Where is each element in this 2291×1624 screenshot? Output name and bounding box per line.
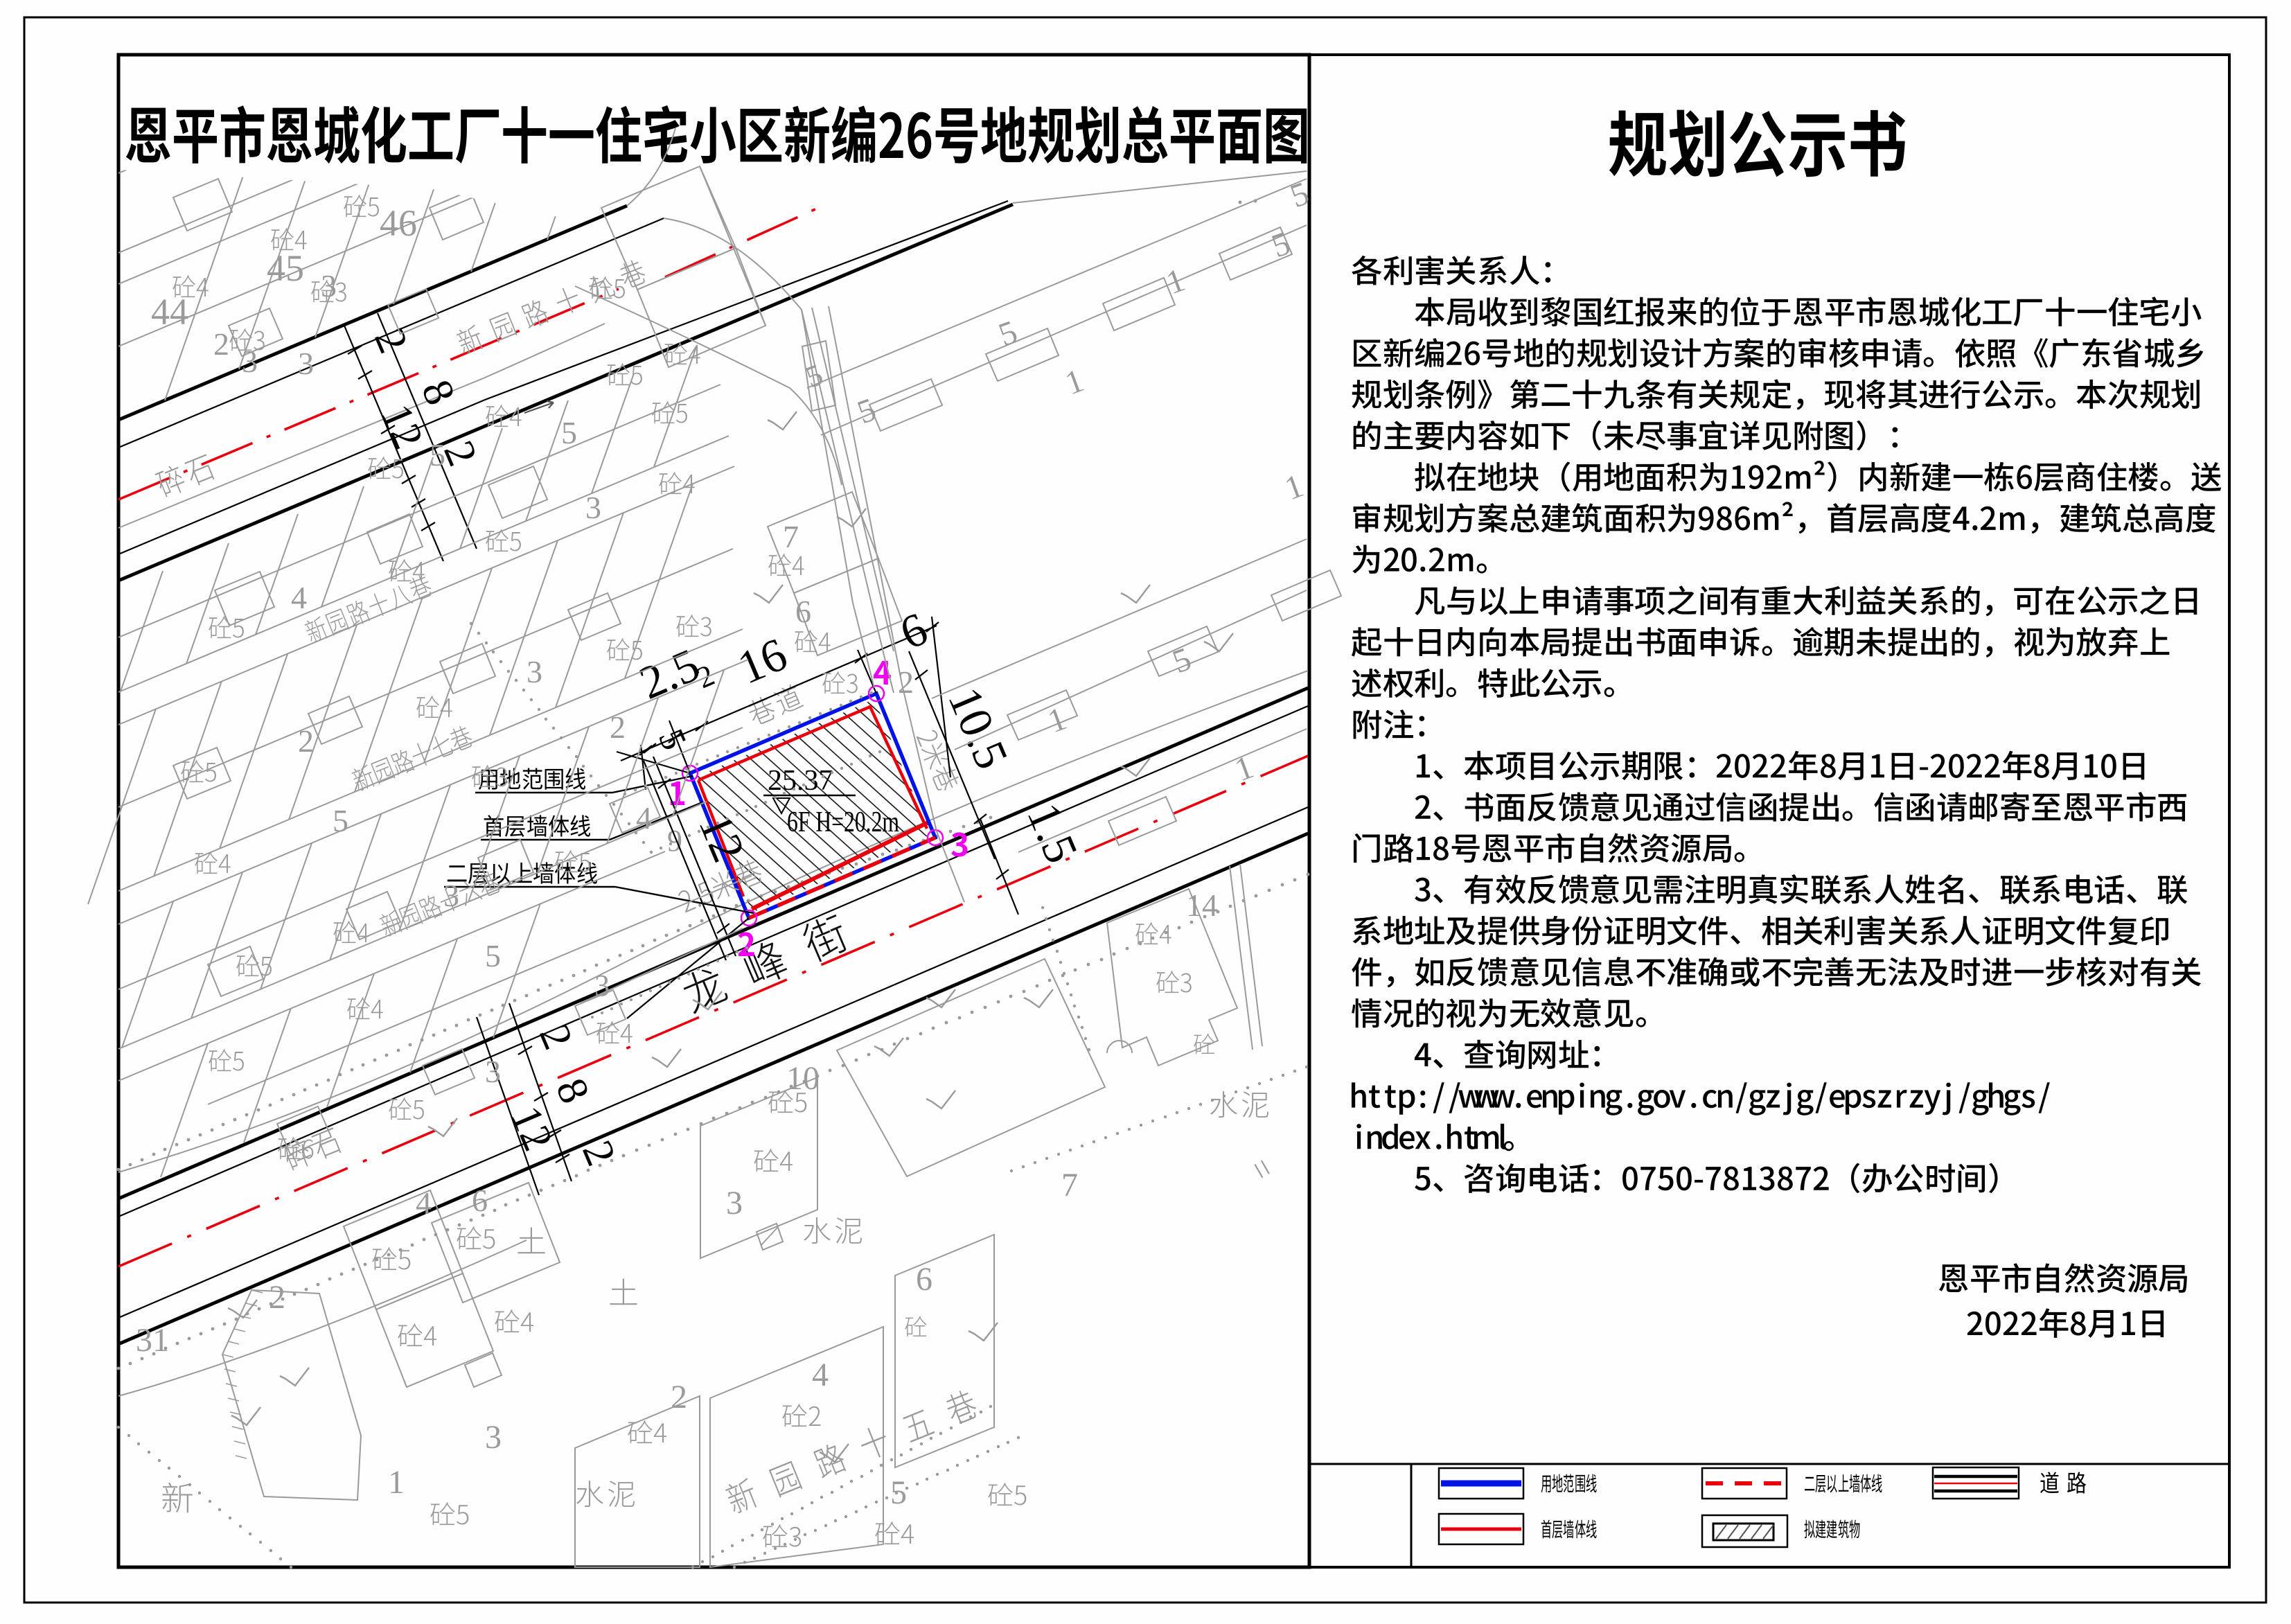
svg-text:2: 2: [671, 1379, 687, 1415]
svg-text:7: 7: [783, 519, 799, 554]
svg-text:5: 5: [430, 437, 445, 473]
svg-text:6F H=20.2m: 6F H=20.2m: [787, 806, 899, 838]
svg-text:6: 6: [916, 1261, 932, 1298]
svg-text:5: 5: [561, 415, 577, 450]
svg-text:46: 46: [380, 202, 417, 244]
svg-text:2: 2: [610, 709, 626, 745]
svg-text:3: 3: [485, 1054, 501, 1089]
svg-text:3: 3: [485, 1419, 502, 1456]
svg-text:3: 3: [242, 344, 258, 379]
svg-text:5: 5: [333, 803, 348, 838]
svg-text:4: 4: [636, 800, 652, 836]
svg-text:7: 7: [1061, 1167, 1078, 1203]
svg-text:3: 3: [443, 878, 459, 913]
svg-text:14: 14: [1186, 888, 1218, 923]
svg-text:3: 3: [527, 654, 542, 689]
svg-text:25.37: 25.37: [768, 765, 833, 797]
svg-text:4: 4: [291, 580, 307, 615]
svg-text:2: 2: [269, 1279, 285, 1316]
svg-text:31: 31: [136, 1322, 169, 1359]
svg-text:3: 3: [298, 346, 314, 381]
svg-text:1: 1: [388, 1464, 405, 1501]
svg-text:5: 5: [890, 1474, 907, 1511]
svg-text:5: 5: [485, 938, 501, 973]
svg-text:2: 2: [898, 664, 914, 700]
svg-text:2: 2: [298, 723, 314, 759]
svg-text:44: 44: [151, 291, 188, 333]
svg-text:3: 3: [726, 1185, 743, 1221]
svg-text:4: 4: [812, 1357, 829, 1393]
svg-text:2: 2: [213, 326, 229, 362]
svg-text:3: 3: [321, 268, 337, 303]
svg-text:45: 45: [267, 247, 304, 289]
svg-text:6: 6: [795, 594, 811, 629]
svg-text:3: 3: [585, 490, 601, 525]
